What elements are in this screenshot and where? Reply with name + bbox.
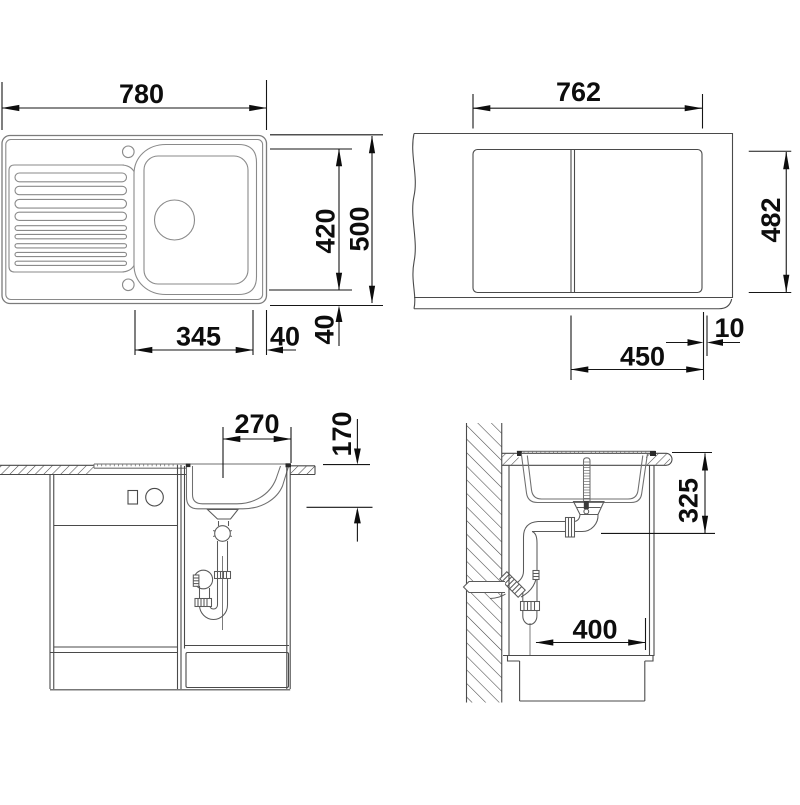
svg-text:762: 762 — [556, 77, 601, 107]
svg-text:10: 10 — [714, 313, 744, 343]
svg-text:500: 500 — [345, 206, 375, 251]
svg-text:40: 40 — [270, 322, 300, 352]
svg-text:325: 325 — [674, 478, 704, 523]
svg-text:170: 170 — [327, 411, 357, 456]
svg-text:482: 482 — [756, 197, 786, 242]
svg-text:450: 450 — [620, 342, 665, 372]
svg-text:420: 420 — [311, 208, 341, 253]
svg-text:40: 40 — [310, 314, 340, 344]
svg-text:270: 270 — [234, 409, 279, 439]
svg-text:400: 400 — [572, 615, 617, 645]
svg-text:345: 345 — [176, 322, 221, 352]
svg-text:780: 780 — [119, 79, 164, 109]
